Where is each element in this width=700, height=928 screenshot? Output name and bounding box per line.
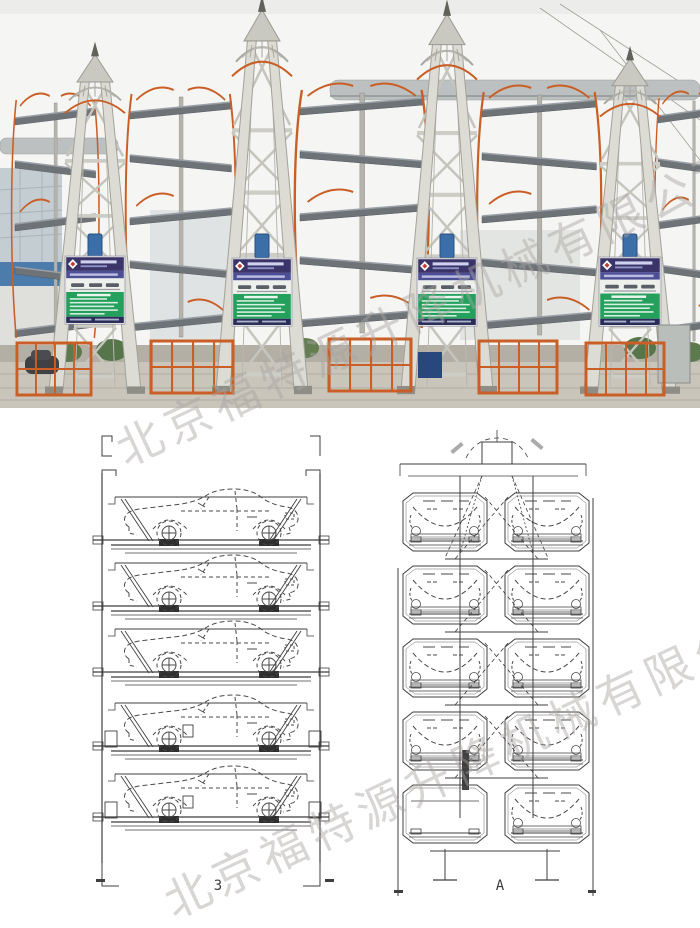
car-level-4 [93, 695, 329, 759]
sky-top-band [0, 0, 700, 14]
sign-board-2 [232, 258, 292, 326]
drawing-side-elevation: 3 [85, 418, 351, 928]
drawing-right-label: A [496, 878, 505, 894]
building-left [0, 168, 62, 348]
overhead-duct-left [0, 138, 118, 154]
cradle-row-1 [403, 493, 589, 559]
sign-board-1 [65, 256, 125, 324]
photo-parking-towers [0, 0, 700, 408]
car-level-3 [93, 621, 329, 685]
cradle-row-4 [403, 712, 589, 778]
sign-board-4 [599, 257, 661, 326]
car-level-5 [93, 766, 329, 830]
side-stops [105, 725, 321, 818]
sign-board-3 [417, 258, 477, 326]
drawing-left-label: 3 [214, 878, 222, 894]
car-level-1 [93, 489, 329, 553]
drawing-front-elevation: A [390, 418, 596, 928]
support-legs [433, 849, 559, 880]
cradle-row-3 [403, 639, 589, 705]
blue-bin [418, 352, 442, 378]
cradle-row-2 [403, 566, 589, 632]
cradle-row-5 [403, 785, 589, 851]
product-image: 3 [0, 0, 700, 928]
car-level-2 [93, 555, 329, 619]
